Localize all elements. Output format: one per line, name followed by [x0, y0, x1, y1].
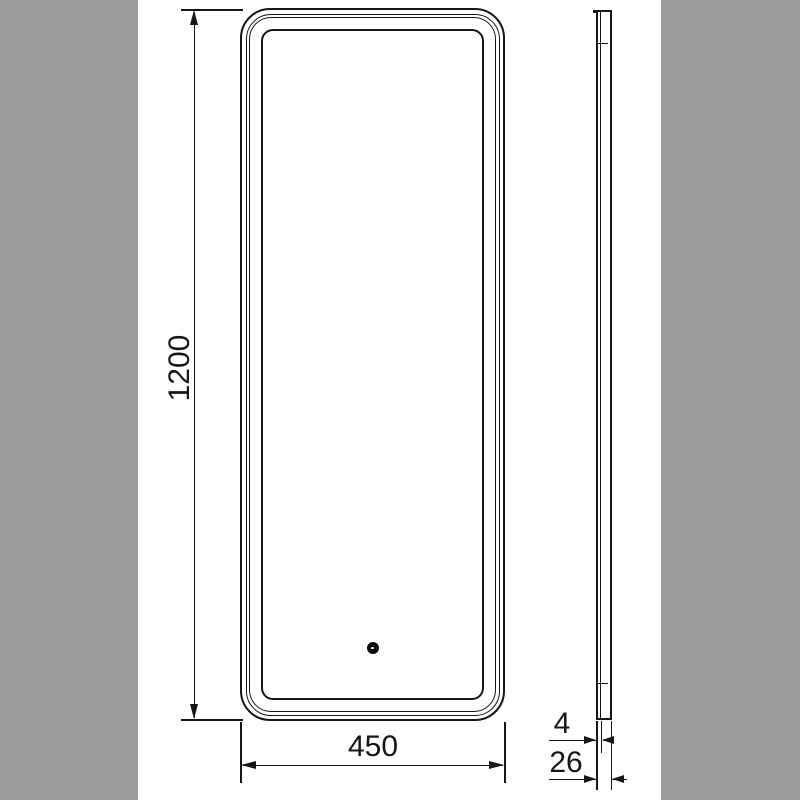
depth-label: 26 [541, 748, 591, 778]
front-view-glass-outline [261, 29, 484, 700]
width-dim-arrow-left [241, 761, 256, 769]
side-view-lower-tick [597, 683, 608, 685]
width-dim-extension-right [504, 722, 506, 783]
width-dim-line [243, 765, 503, 767]
depth-dim-arrow-right [612, 775, 624, 783]
side-view-top-notch [593, 10, 598, 13]
touch-sensor-glint [371, 647, 374, 649]
depth-dim-extension-front [596, 721, 598, 790]
height-dim-arrow-top [190, 10, 198, 25]
touch-sensor-dot [367, 642, 379, 654]
glass-thickness-label: 4 [547, 709, 577, 739]
side-view-upper-tick [597, 43, 608, 45]
glass-dim-arrow-right [602, 736, 614, 744]
height-dim-label: 1200 [165, 298, 195, 438]
drawing-canvas: 1200 450 4 26 [0, 0, 800, 800]
side-view-profile-outline [596, 10, 612, 720]
side-view-glass-back-line [600, 12, 602, 718]
width-dim-arrow-right [489, 761, 504, 769]
width-dim-extension-left [240, 722, 242, 783]
glass-dim-arrow-left [584, 736, 596, 744]
width-dim-label: 450 [323, 732, 423, 762]
height-dim-extension-bottom [181, 719, 243, 721]
height-dim-arrow-bottom [190, 704, 198, 719]
